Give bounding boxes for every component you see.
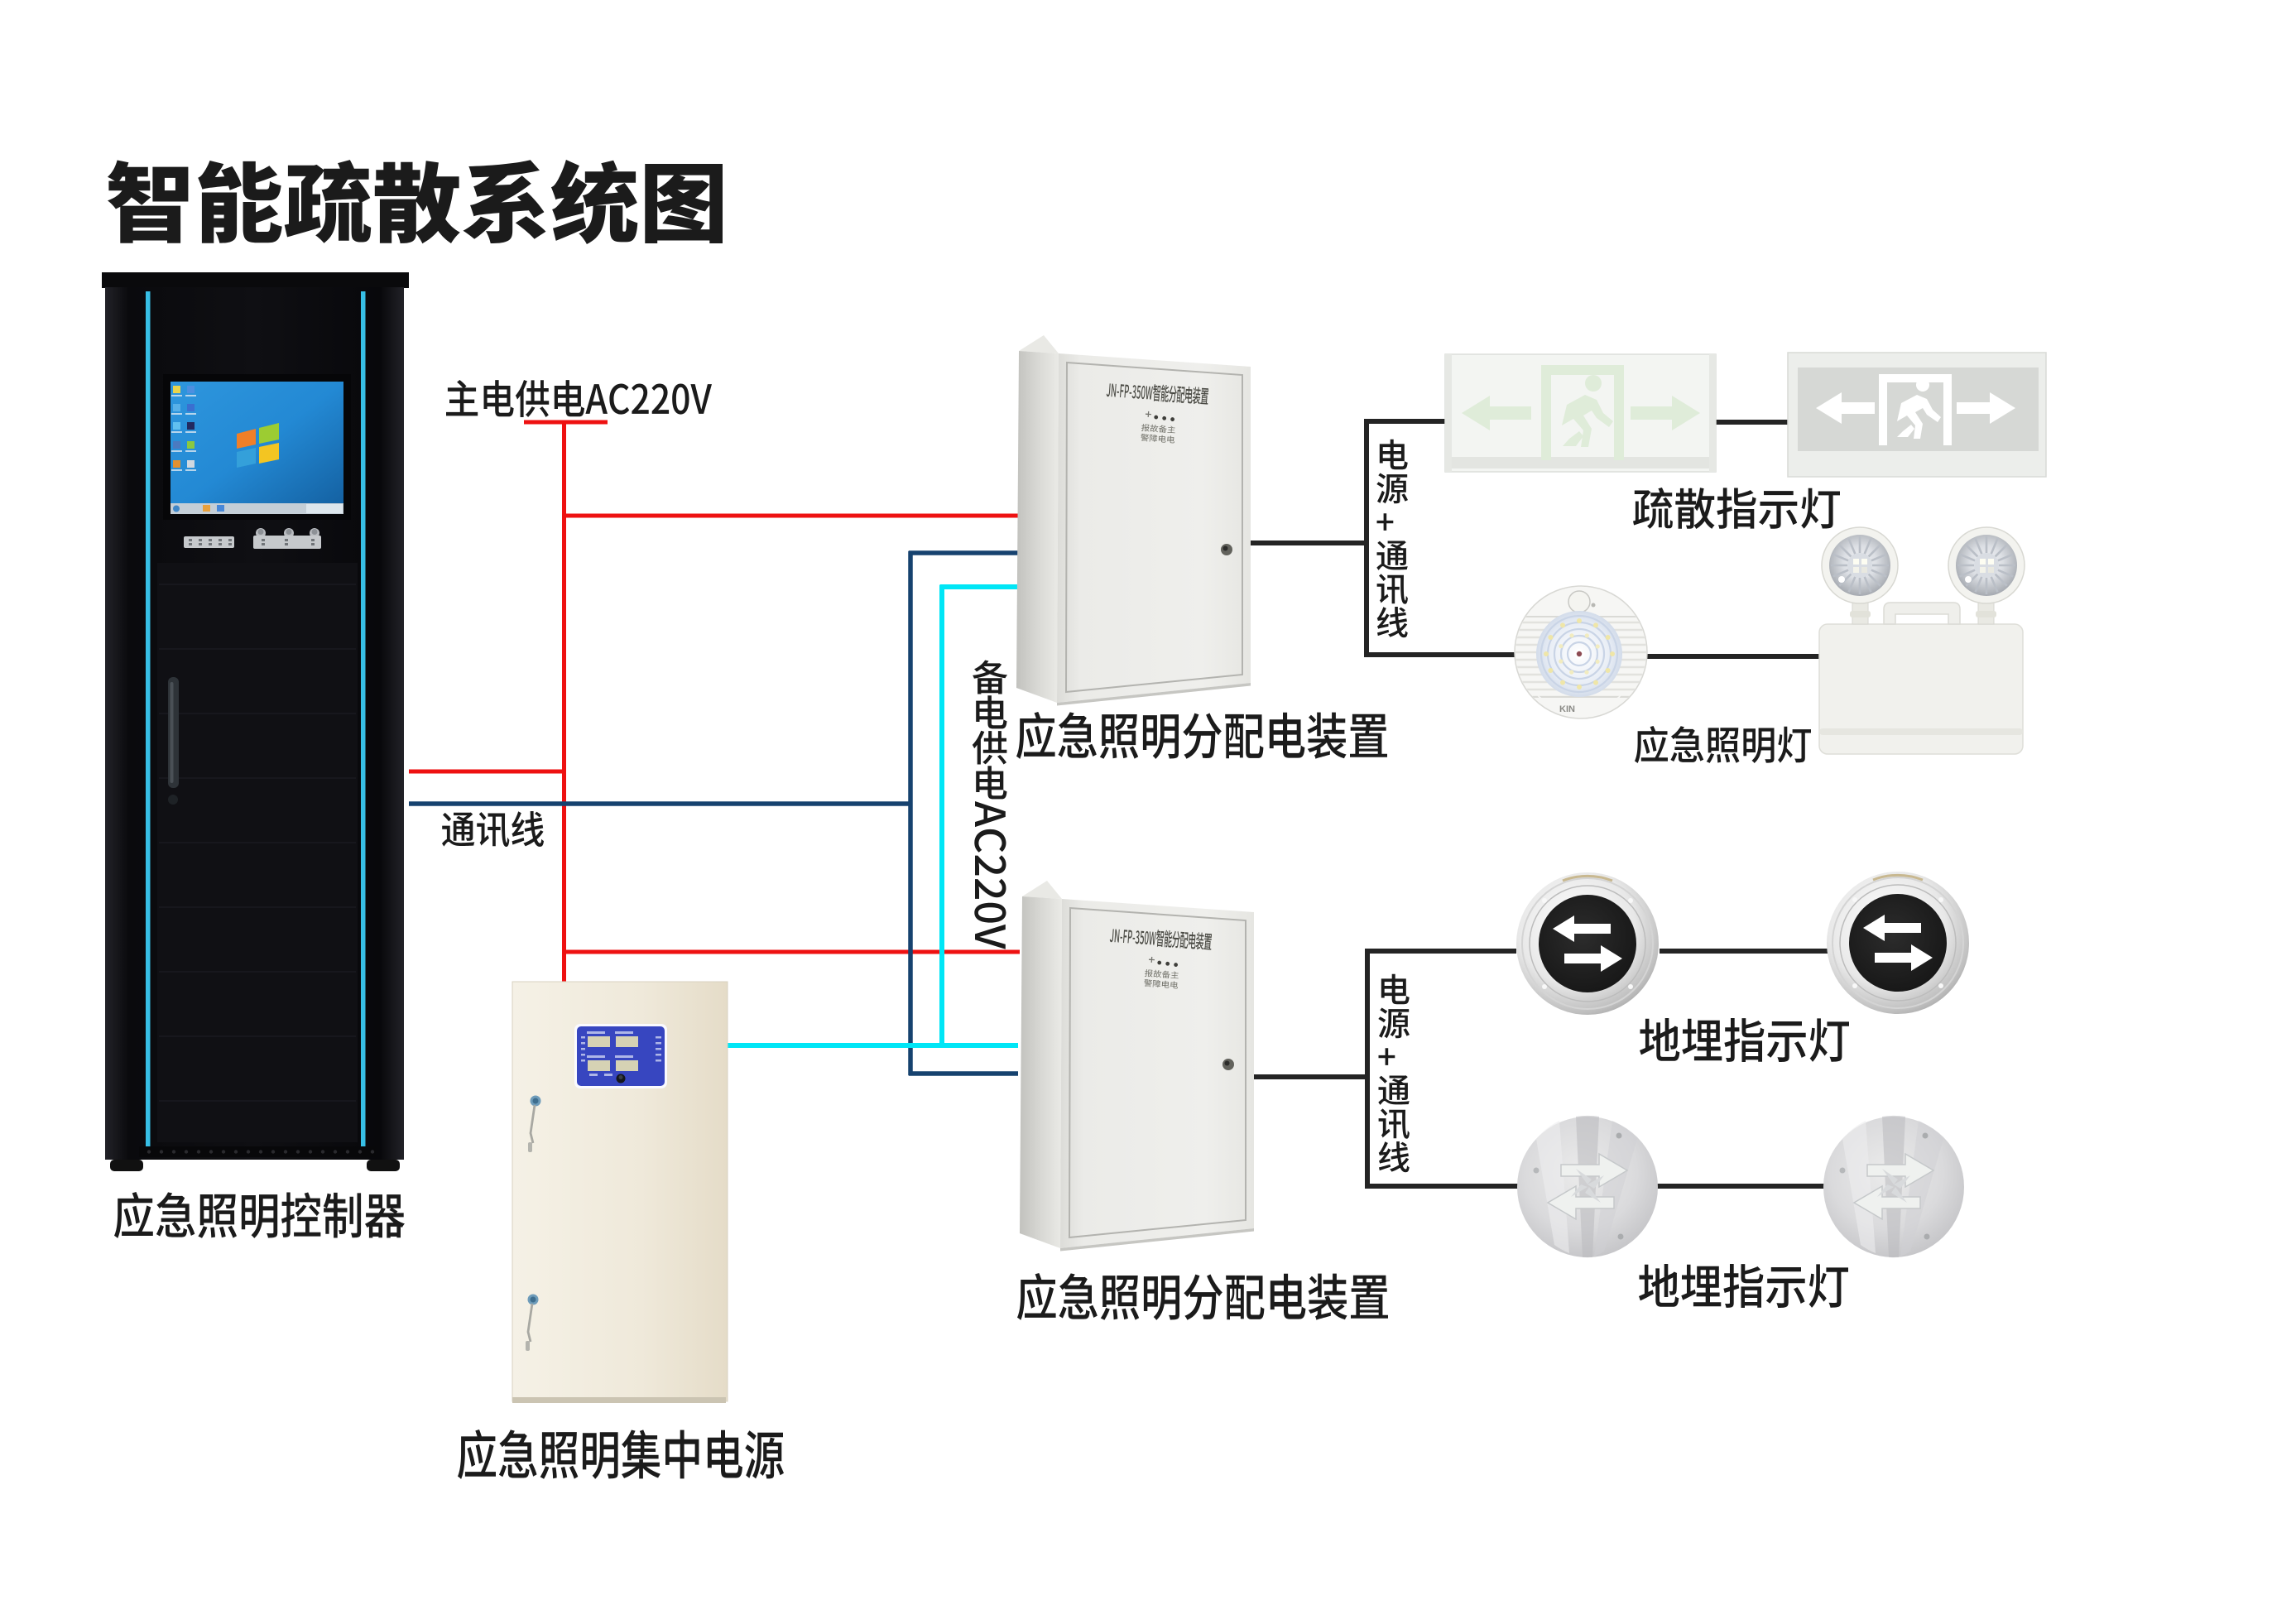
- svg-text:KIN: KIN: [1559, 704, 1575, 714]
